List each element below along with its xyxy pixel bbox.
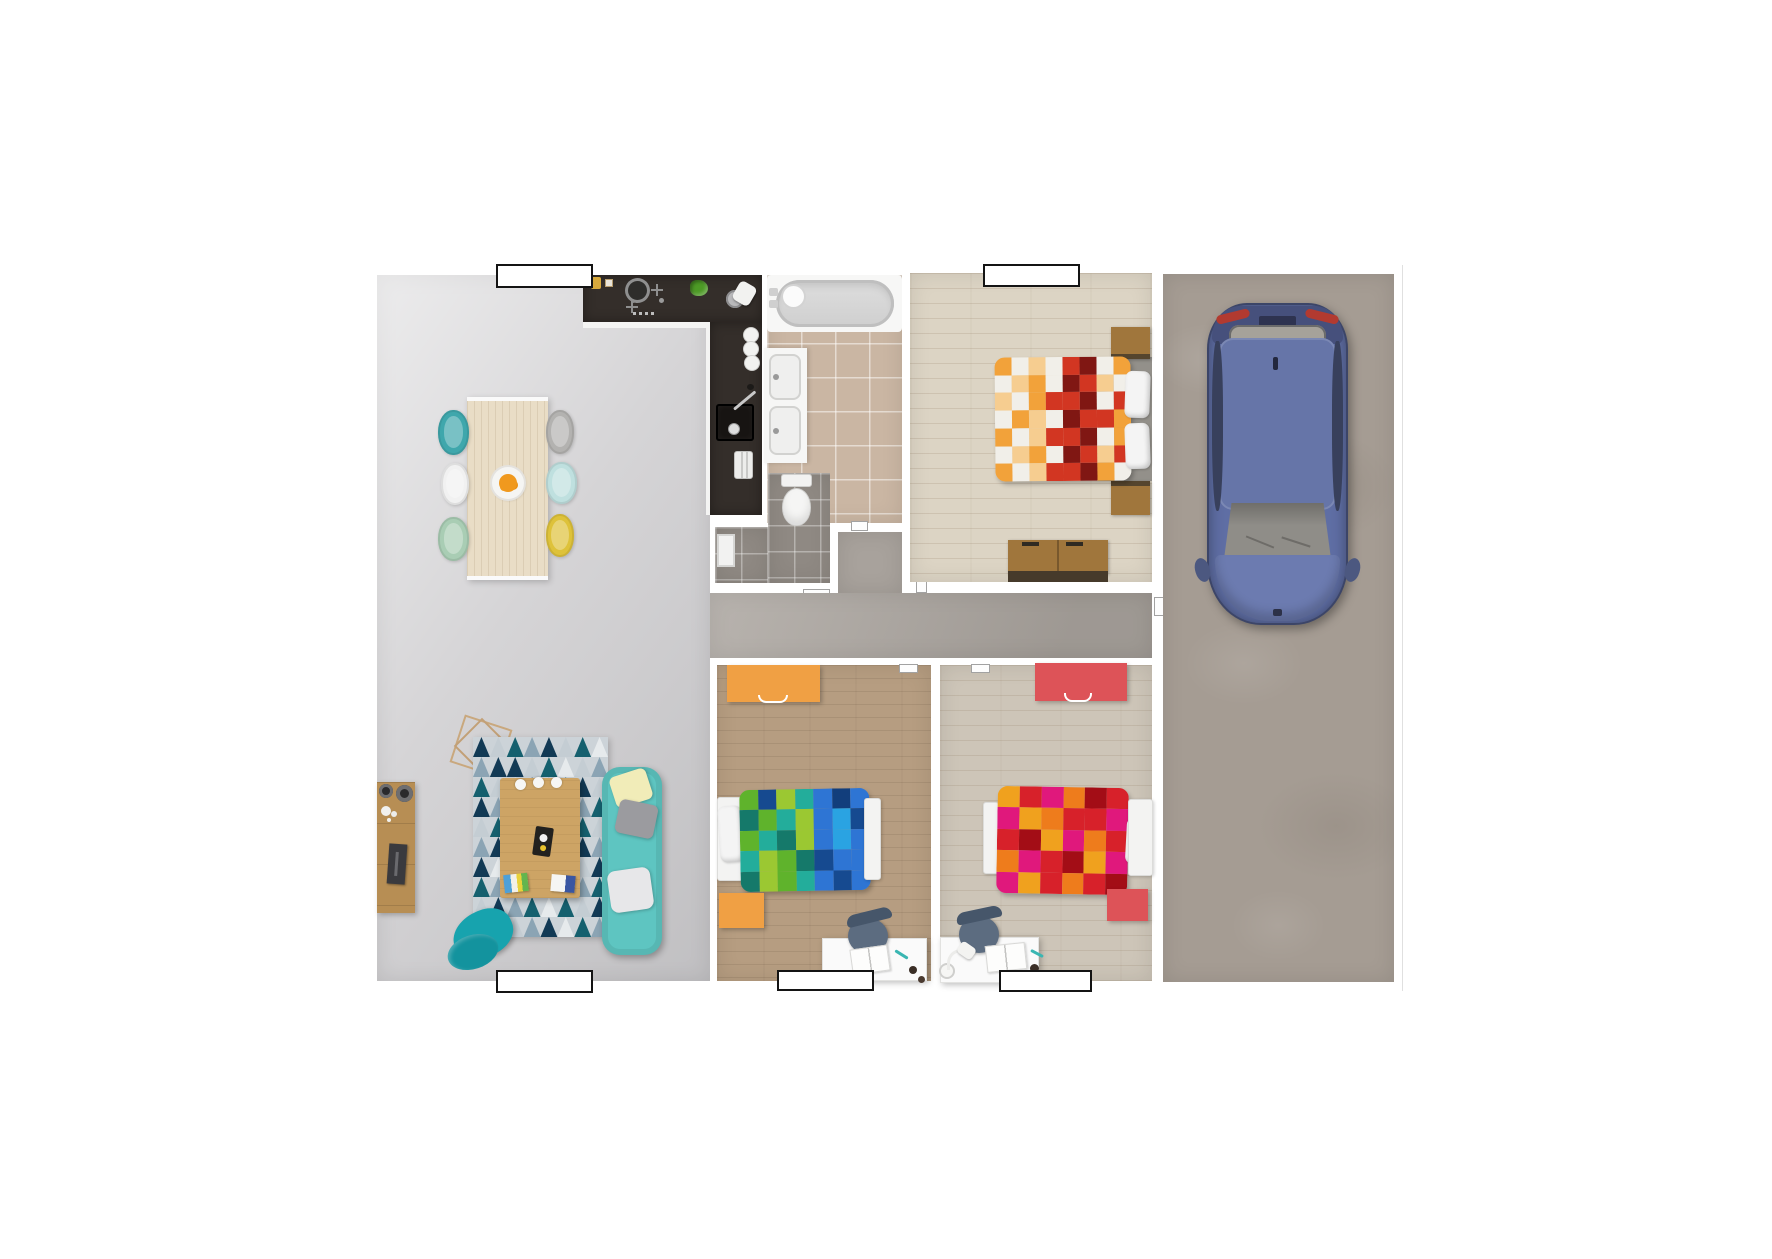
magazine [550, 874, 575, 893]
dining-chair [546, 410, 574, 454]
bedroom-dresser-base [1008, 571, 1108, 582]
kitchen-counter-edge [583, 322, 710, 328]
room-label-box[interactable] [983, 264, 1080, 287]
cooking-pot [625, 278, 650, 303]
car-side-window [1332, 341, 1343, 511]
room-label-box[interactable] [496, 264, 593, 288]
kid2-dresser [1035, 663, 1127, 701]
open-book [985, 942, 1028, 973]
toilet-bowl [782, 488, 811, 526]
kid1-door [899, 664, 918, 673]
dresser-handle [1022, 542, 1039, 546]
magazine [503, 873, 529, 893]
bedroom-dresser [1008, 540, 1108, 574]
dining-chair [546, 514, 574, 557]
plate-stack [744, 342, 758, 356]
dining-chair [546, 462, 577, 504]
desk-accessory [918, 976, 925, 983]
dining-chair [438, 410, 469, 455]
chair-seat [444, 523, 464, 554]
hallway-floor [838, 532, 902, 593]
car-badge [1273, 609, 1282, 616]
butter-dish [605, 279, 613, 287]
sink-basin [769, 354, 801, 400]
hallway-floor [710, 593, 1152, 658]
kid1-bed-footboard [864, 798, 881, 880]
sink-faucet-icon [773, 374, 779, 380]
chair-seat [551, 520, 569, 550]
kid2-door [971, 664, 990, 673]
room-label-box[interactable] [777, 970, 874, 991]
toilet-tank [781, 474, 812, 487]
faucet-base [729, 424, 739, 434]
speaker [379, 784, 393, 798]
kid2-bed-headboard [1128, 799, 1153, 876]
chair-seat [551, 416, 569, 447]
plate-stack [745, 356, 759, 370]
tv [387, 843, 408, 884]
bathtub-faucet [769, 288, 778, 296]
speaker [396, 785, 413, 802]
dresser-handle [758, 695, 788, 703]
kid1-nightstand [719, 893, 764, 928]
kid2-bed-duvet [996, 786, 1129, 895]
floor-texture [710, 593, 1152, 658]
room-label-box[interactable] [999, 970, 1092, 992]
car [1207, 303, 1348, 625]
kid2-nightstand [1107, 889, 1148, 921]
bathroom-door [851, 521, 868, 531]
tv-stand [394, 852, 399, 876]
fruit-oranges [499, 474, 517, 492]
car-antenna [1273, 357, 1278, 370]
chair-seat [446, 469, 464, 498]
cup [551, 777, 562, 788]
dresser-handle [1066, 542, 1083, 546]
dresser-handle [1064, 693, 1092, 702]
chair-seat [552, 468, 572, 497]
room-label-box[interactable] [496, 970, 593, 993]
master-bed-duvet [994, 356, 1131, 481]
bed-pillow [1124, 371, 1151, 419]
car-side-window [1212, 341, 1223, 511]
bathtub-drain-cover [783, 286, 804, 307]
garage-outer-wall-line [1402, 265, 1403, 991]
gas-knob [747, 384, 754, 390]
bathtub-faucet [769, 300, 778, 308]
kid1-bed-duvet [739, 788, 871, 892]
desk-accessory [909, 966, 917, 974]
kid1-dresser [727, 665, 820, 702]
plate-stack [744, 328, 758, 342]
wc-wall-shelf [717, 534, 735, 567]
lettuce [690, 280, 708, 296]
cup [533, 777, 544, 788]
kitchen-counter-edge [706, 322, 710, 515]
cup [515, 779, 526, 790]
sofa-pillow [606, 866, 654, 914]
tray-dish [540, 845, 547, 852]
tray-dish [539, 834, 548, 843]
decor-candles [381, 806, 391, 816]
floor-plan [0, 0, 1772, 1259]
sink-basin [769, 406, 801, 455]
dining-chair [438, 517, 469, 561]
sink-faucet-icon [773, 428, 779, 434]
nightstand [1111, 481, 1150, 515]
cooktop-controls [633, 312, 657, 315]
car-windshield [1224, 503, 1331, 559]
nightstand [1111, 327, 1150, 359]
paper-towel-holder [734, 451, 753, 479]
dining-chair [441, 463, 469, 505]
burner-mark [651, 284, 663, 296]
bed-pillow [1124, 423, 1151, 470]
chair-seat [444, 416, 464, 448]
